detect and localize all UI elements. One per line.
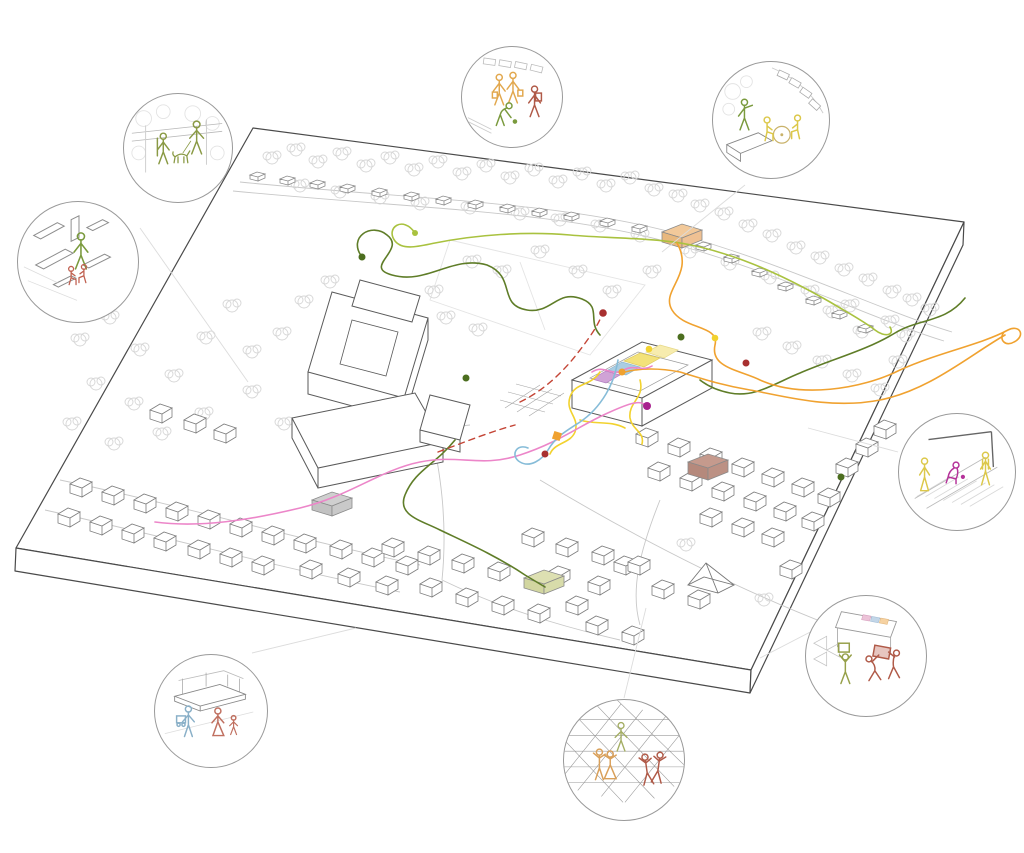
- green-petanque-figure: [496, 103, 516, 126]
- red-children-figures: [69, 264, 87, 284]
- vignette-silence-ca-pousse-illustration: [899, 414, 1015, 530]
- vignette-chez-les-scop-illustration: [155, 655, 267, 767]
- green-box-carrier-figure: [838, 643, 851, 683]
- red-hiker-figure: [529, 86, 542, 116]
- blue-vendor-figure: [177, 706, 195, 737]
- vignette-quand-la-cloche-sonne: Quand la cloche sonne: [17, 201, 139, 323]
- vignette-au-cens-large-illustration: [462, 47, 562, 147]
- vignette-chez-les-scop: Chez les Scop !: [154, 654, 268, 768]
- vignette-donnons-une-seconde-vie: Donnons une seconde vie !: [805, 595, 927, 717]
- orange-stroller-figures: [492, 72, 522, 104]
- vignette-une-halle-dansante-illustration: [564, 700, 684, 820]
- yellow-cafe-figures: [764, 115, 800, 141]
- vignette-quand-la-cloche-sonne-illustration: [18, 202, 138, 322]
- vignette-longeons-le-cens: Longeons le Cens: [123, 93, 233, 203]
- magenta-planter-figure: [946, 462, 964, 484]
- page-root: Longeons le Cens: [0, 0, 1024, 853]
- vignette-une-halle-dansante: Une halle dansante: [563, 699, 685, 821]
- red-mother-and-child-figures: [212, 708, 238, 736]
- vignette-longeons-le-cens-illustration: [124, 94, 232, 202]
- truss-roof-grid: [564, 700, 684, 802]
- green-birdwatcher-figure: [739, 99, 753, 130]
- vignette-belved-air: Belved'air: [712, 61, 830, 179]
- yellow-gardener-left-figure: [920, 458, 930, 491]
- yellow-gardener-right-figure: [981, 452, 991, 485]
- red-movers-figures: [866, 645, 899, 680]
- orange-dancing-pair-figures: [594, 749, 617, 780]
- vignette-donnons-une-seconde-vie-illustration: [806, 596, 926, 716]
- vignette-belved-air-illustration: [713, 62, 829, 178]
- vignette-silence-ca-pousse: Silence ça pousse: [898, 413, 1016, 531]
- vignette-au-cens-large: Au Cens large: [461, 46, 563, 148]
- dog-figure: [173, 151, 190, 163]
